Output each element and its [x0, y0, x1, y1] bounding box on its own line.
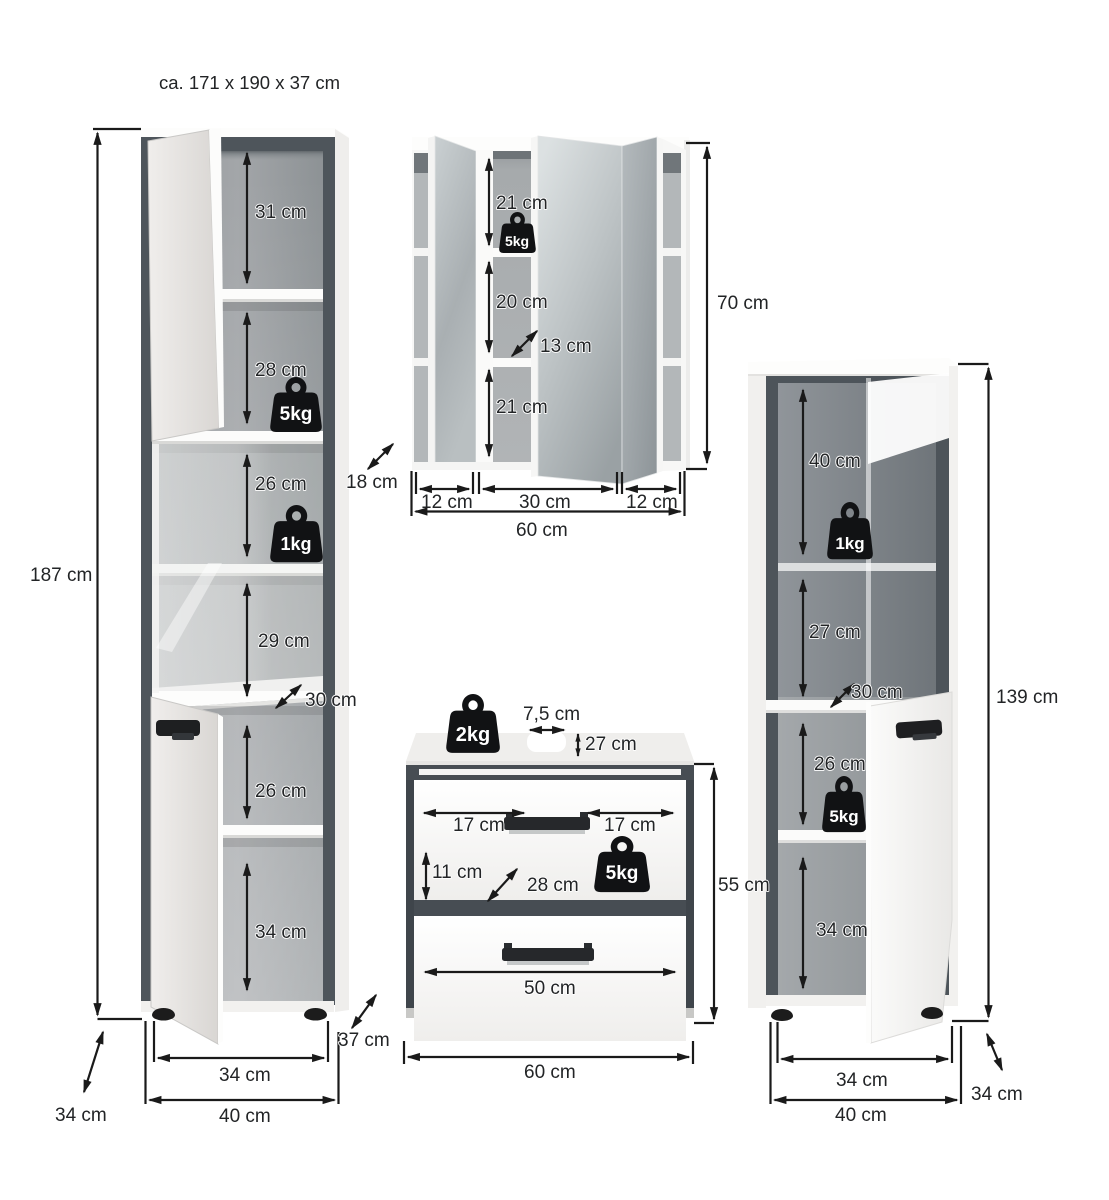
svg-text:55 cm: 55 cm	[718, 875, 770, 896]
svg-text:34 cm: 34 cm	[219, 1065, 271, 1086]
svg-text:21 cm: 21 cm	[496, 193, 548, 214]
svg-text:40 cm: 40 cm	[809, 451, 861, 472]
svg-text:20 cm: 20 cm	[496, 292, 548, 313]
svg-text:1kg: 1kg	[280, 534, 311, 554]
svg-text:21 cm: 21 cm	[496, 397, 548, 418]
svg-text:60 cm: 60 cm	[516, 520, 568, 541]
svg-text:40 cm: 40 cm	[835, 1105, 887, 1126]
svg-text:ca. 171 x 190 x 37 cm: ca. 171 x 190 x 37 cm	[159, 72, 340, 93]
svg-text:26 cm: 26 cm	[255, 474, 307, 495]
svg-text:12 cm: 12 cm	[421, 492, 473, 513]
svg-text:34 cm: 34 cm	[255, 922, 307, 943]
svg-text:34 cm: 34 cm	[971, 1084, 1023, 1105]
svg-text:37 cm: 37 cm	[338, 1030, 390, 1051]
svg-text:5kg: 5kg	[280, 404, 313, 425]
svg-text:34 cm: 34 cm	[836, 1070, 888, 1091]
svg-text:5kg: 5kg	[505, 233, 529, 249]
svg-text:7,5 cm: 7,5 cm	[523, 704, 580, 725]
svg-text:187 cm: 187 cm	[30, 565, 92, 586]
svg-text:18 cm: 18 cm	[346, 472, 398, 493]
svg-text:34 cm: 34 cm	[55, 1105, 107, 1126]
svg-text:13 cm: 13 cm	[540, 336, 592, 357]
svg-text:17 cm: 17 cm	[453, 815, 505, 836]
svg-text:30 cm: 30 cm	[519, 492, 571, 513]
svg-text:26 cm: 26 cm	[814, 754, 866, 775]
svg-text:29 cm: 29 cm	[258, 631, 310, 652]
svg-text:60 cm: 60 cm	[524, 1062, 576, 1083]
svg-text:11 cm: 11 cm	[432, 862, 482, 883]
svg-text:34 cm: 34 cm	[816, 920, 868, 941]
svg-text:26 cm: 26 cm	[255, 781, 307, 802]
svg-text:28 cm: 28 cm	[527, 875, 579, 896]
svg-text:139 cm: 139 cm	[996, 687, 1058, 708]
svg-text:5kg: 5kg	[829, 807, 858, 826]
svg-text:70 cm: 70 cm	[717, 293, 769, 314]
svg-text:1kg: 1kg	[835, 534, 864, 553]
svg-text:50 cm: 50 cm	[524, 978, 576, 999]
svg-text:12 cm: 12 cm	[626, 492, 678, 513]
svg-text:17 cm: 17 cm	[604, 815, 656, 836]
svg-text:31 cm: 31 cm	[255, 202, 307, 223]
svg-text:27 cm: 27 cm	[585, 734, 637, 755]
svg-text:5kg: 5kg	[606, 863, 639, 884]
svg-text:27 cm: 27 cm	[809, 622, 861, 643]
svg-text:40 cm: 40 cm	[219, 1106, 271, 1127]
svg-text:30 cm: 30 cm	[851, 682, 903, 703]
svg-text:30 cm: 30 cm	[305, 690, 357, 711]
svg-text:2kg: 2kg	[456, 724, 490, 746]
